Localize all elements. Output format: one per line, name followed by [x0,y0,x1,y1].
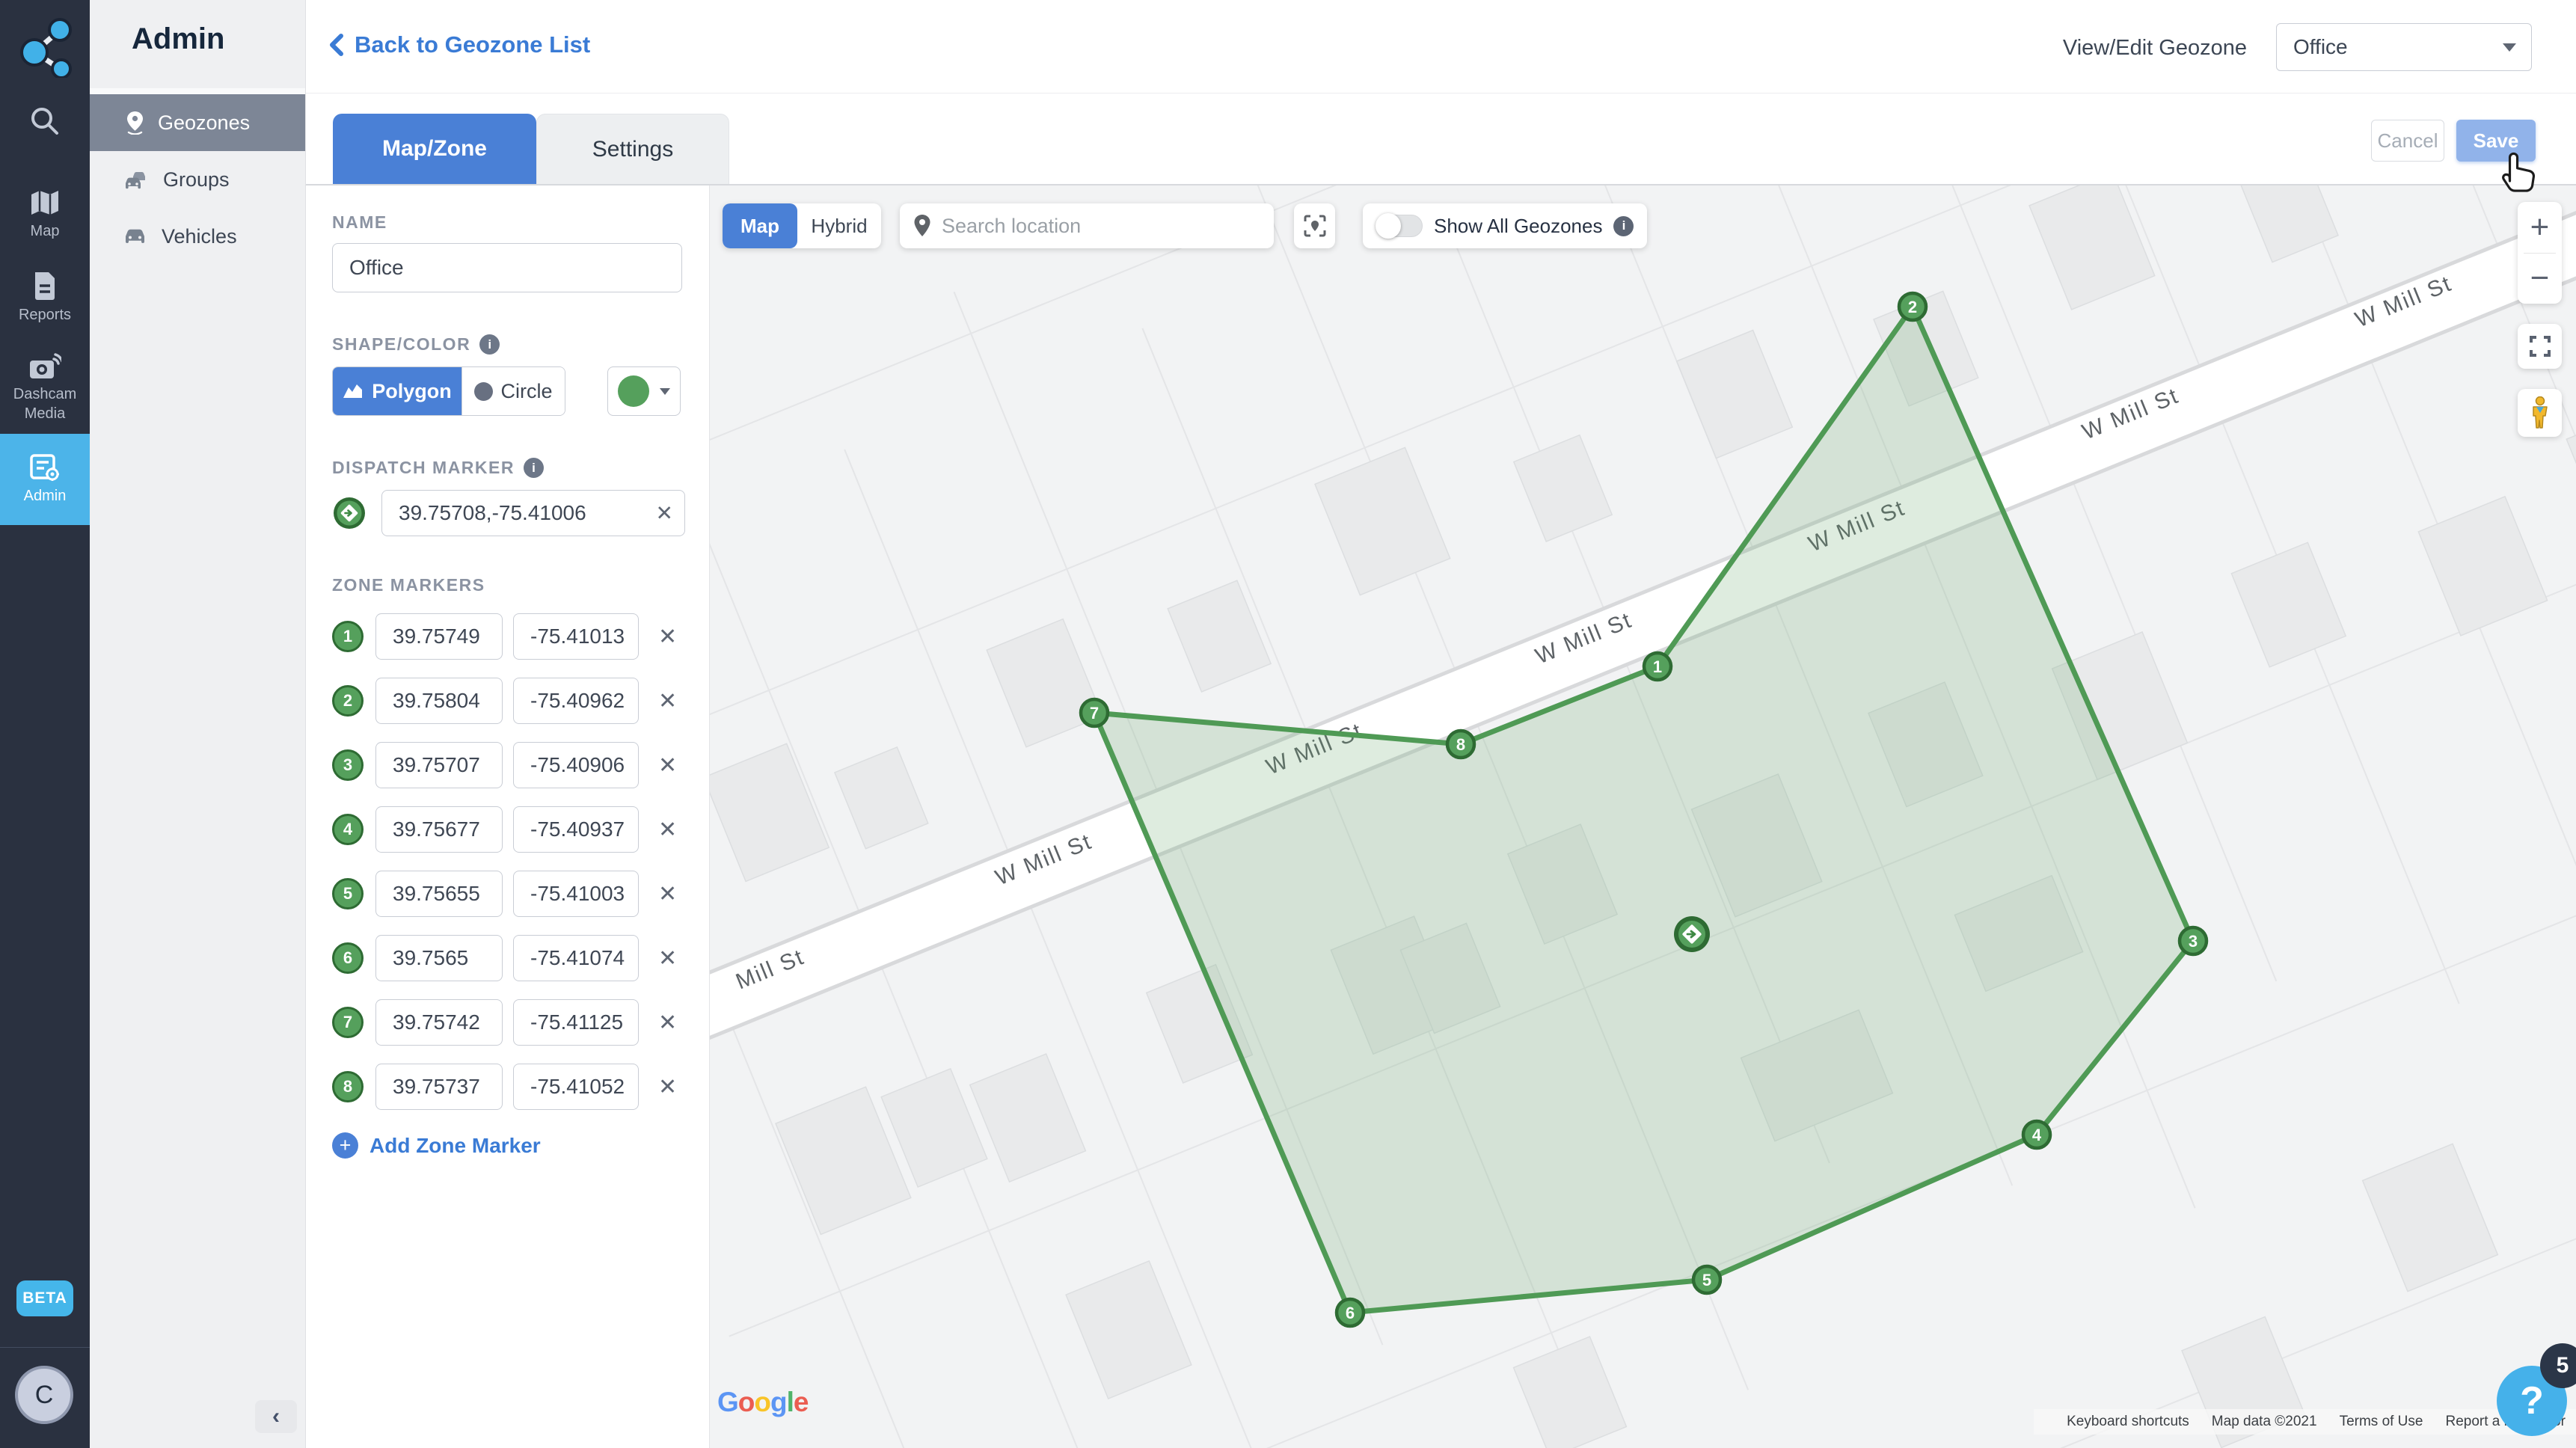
save-button[interactable]: Save [2456,120,2536,162]
dispatch-input-wrap: ✕ [381,490,685,536]
zone-marker-lng-input[interactable] [513,613,639,660]
map-icon [29,188,61,217]
geozone-select-value: Office [2293,35,2348,59]
remove-zone-marker-button[interactable]: ✕ [658,1074,677,1100]
rail-item-label: Reports [0,305,90,325]
reports-icon [32,271,58,301]
zone-marker-row: 4 ✕ [332,806,709,853]
admin-panel-title: Admin [90,0,305,88]
map-zone-marker-number: 5 [1702,1271,1711,1289]
map-base-layer: Mill StW Mill StW Mill StW Mill StW Mill… [710,185,2576,1448]
map-zone-marker[interactable]: 2 [1899,293,1926,320]
center-focus-icon [1304,215,1326,237]
map-zone-marker-number: 8 [1456,735,1465,754]
zone-marker-row: 5 ✕ [332,871,709,917]
zone-marker-lat-input[interactable] [375,999,503,1046]
zone-marker-number-badge: 1 [332,621,364,652]
sidebar-item-label: Vehicles [162,225,237,248]
map-zone-marker[interactable]: 5 [1693,1266,1720,1293]
remove-zone-marker-button[interactable]: ✕ [658,817,677,843]
remove-zone-marker-button[interactable]: ✕ [658,945,677,972]
map-attribution-item[interactable]: Map data ©2021 [2212,1414,2317,1429]
geozone-form-panel: NAME SHAPE/COLOR i Polygon Circle DISPAT… [306,185,710,1448]
clear-dispatch-button[interactable]: ✕ [656,501,673,526]
tab-bar: Map/Zone Settings [333,114,729,184]
zone-marker-list: 1 ✕ 2 ✕ 3 ✕ 4 ✕ 5 ✕ 6 ✕ 7 ✕ [332,613,709,1110]
polygon-icon [343,383,363,399]
plus-icon: + [332,1132,358,1159]
zone-marker-lat-input[interactable] [375,935,503,981]
sidebar-item-vehicles[interactable]: Vehicles [90,208,305,265]
google-logo-letter: o [754,1387,770,1417]
sidebar-item-geozones[interactable]: Geozones [90,94,305,151]
zone-marker-row: 3 ✕ [332,742,709,788]
shape-controls: Polygon Circle [332,366,709,416]
circle-icon [474,382,493,401]
back-link[interactable]: Back to Geozone List [329,31,590,58]
map-dispatch-marker[interactable] [1674,916,1710,952]
zone-marker-lat-input[interactable] [375,678,503,724]
fullscreen-button[interactable] [2518,324,2562,369]
location-pin-icon [913,214,931,238]
info-icon[interactable]: i [1613,216,1634,236]
map-zone-marker-number: 4 [2032,1126,2042,1144]
zone-marker-row: 1 ✕ [332,613,709,660]
tab-map-zone[interactable]: Map/Zone [333,114,536,184]
google-logo-letter: g [770,1387,787,1417]
vehicle-icon [124,226,150,247]
map-zoom-control: + − [2518,202,2562,304]
zone-marker-number-badge: 8 [332,1071,364,1102]
map-zone-marker[interactable]: 3 [2180,927,2207,954]
remove-zone-marker-button[interactable]: ✕ [658,1010,677,1036]
back-link-label: Back to Geozone List [355,31,590,58]
zoom-out-button[interactable]: − [2518,254,2562,304]
sidebar-item-label: Geozones [158,111,250,135]
zone-marker-number-badge: 7 [332,1007,364,1038]
user-avatar[interactable]: C [15,1366,73,1424]
zone-marker-lng-input[interactable] [513,742,639,788]
map-canvas[interactable]: Mill StW Mill StW Mill StW Mill StW Mill… [710,185,2576,1448]
chevron-down-icon [660,388,670,395]
zone-marker-row: 6 ✕ [332,935,709,981]
rail-item-label: Dashcam Media [0,384,90,423]
name-input[interactable] [332,243,682,292]
rail-item-admin[interactable]: Admin [0,434,90,525]
zone-marker-number-badge: 2 [332,685,364,717]
google-logo-letter: o [738,1387,755,1417]
map-attribution: Keyboard shortcutsMap data ©2021Terms of… [2034,1409,2576,1435]
map-zone-marker-number: 3 [2189,932,2198,951]
admin-icon [29,453,61,482]
zone-marker-lng-input[interactable] [513,1064,639,1110]
tab-settings[interactable]: Settings [536,114,729,184]
name-label: NAME [332,212,709,233]
rail-item-reports[interactable]: Reports [0,271,90,343]
google-logo: Google [717,1387,808,1418]
groups-icon [124,169,151,190]
zone-marker-lat-input[interactable] [375,1064,503,1110]
google-logo-letter: l [787,1387,794,1417]
tab-action-row: Map/Zone Settings Cancel Save [306,93,2576,185]
zone-marker-number-badge: 6 [332,942,364,974]
collapse-panel-button[interactable]: ‹ [255,1400,297,1433]
zone-marker-number-badge: 3 [332,749,364,781]
zone-marker-lng-input[interactable] [513,806,639,853]
zone-marker-lat-input[interactable] [375,613,503,660]
rail-item-dashcam[interactable]: Dashcam Media [0,353,90,444]
zone-marker-lng-input[interactable] [513,999,639,1046]
shape-segmented-control: Polygon Circle [332,366,565,416]
rail-item-label: Admin [0,486,90,506]
show-all-geozones-control: Show All Geozones i [1363,203,1647,248]
dispatch-marker-icon [332,496,367,530]
rail-item-label: Map [0,221,90,241]
dashcam-icon [28,353,61,380]
app-logo-icon[interactable] [16,15,73,78]
zone-marker-lng-input[interactable] [513,935,639,981]
rail-item-map[interactable]: Map [0,188,90,260]
map-zone-marker[interactable]: 7 [1081,699,1108,726]
chevron-left-icon [329,34,344,56]
zone-marker-lng-input[interactable] [513,871,639,917]
map-zone-marker[interactable]: 4 [2023,1121,2050,1148]
admin-panel: Admin Geozones Groups Vehicles ‹ [90,0,306,1448]
pegman-button[interactable] [2518,389,2562,437]
remove-zone-marker-button[interactable]: ✕ [658,624,677,650]
zone-marker-number-badge: 5 [332,878,364,909]
fullscreen-icon [2530,336,2551,357]
google-logo-letter: e [794,1387,809,1417]
rail-divider [0,1347,90,1348]
shape-color-label: SHAPE/COLOR i [332,334,709,355]
search-location-input[interactable] [942,215,1226,238]
show-all-geozones-toggle[interactable] [1376,215,1423,237]
circle-shape-button[interactable]: Circle [461,367,565,415]
map-zone-marker[interactable]: 8 [1447,731,1474,758]
icon-rail: Map Reports Dashcam Media [0,0,90,1448]
zone-marker-number-badge: 4 [332,814,364,845]
dispatch-coordinates-input[interactable] [381,490,685,536]
zone-marker-row: 2 ✕ [332,678,709,724]
beta-badge: BETA [16,1280,73,1316]
map-attribution-item[interactable]: Keyboard shortcuts [2067,1414,2189,1429]
map-zone-marker-number: 7 [1090,704,1099,723]
zone-marker-row: 8 ✕ [332,1064,709,1110]
remove-zone-marker-button[interactable]: ✕ [658,752,677,779]
top-bar: Back to Geozone List View/Edit Geozone O… [306,0,2576,93]
map-type-map-button[interactable]: Map [723,203,797,248]
view-edit-label: View/Edit Geozone [2063,36,2247,61]
sidebar-item-label: Groups [163,168,230,191]
pegman-icon [2530,396,2550,429]
google-logo-letter: G [717,1387,738,1417]
zone-markers-label: ZONE MARKERS [332,575,709,595]
info-icon[interactable]: i [479,334,500,355]
remove-zone-marker-button[interactable]: ✕ [658,688,677,714]
search-icon[interactable] [28,105,61,138]
map-zone-marker-number: 2 [1908,298,1917,316]
add-zone-marker-label: Add Zone Marker [369,1134,541,1158]
map-zone-marker-number: 6 [1346,1304,1355,1322]
map-zone-marker[interactable]: 6 [1337,1299,1364,1326]
map-type-toggle: Map Hybrid [723,203,881,248]
zone-marker-lng-input[interactable] [513,678,639,724]
map-attribution-item[interactable]: Terms of Use [2340,1414,2423,1429]
geozone-pin-icon [124,111,146,135]
zone-marker-lat-input[interactable] [375,806,503,853]
sidebar-item-groups[interactable]: Groups [90,151,305,208]
map-type-hybrid-button[interactable]: Hybrid [797,203,881,248]
zone-marker-lat-input[interactable] [375,742,503,788]
cancel-button[interactable]: Cancel [2371,120,2444,162]
zone-marker-lat-input[interactable] [375,871,503,917]
dispatch-marker-label: DISPATCH MARKER i [332,458,709,478]
panel-divider [90,88,305,94]
info-icon[interactable]: i [524,458,544,478]
zone-color-swatch [618,375,649,407]
center-on-zone-button[interactable] [1294,203,1335,248]
show-all-geozones-label: Show All Geozones [1434,215,1602,238]
zone-marker-row: 7 ✕ [332,999,709,1046]
toggle-knob [1376,213,1401,239]
zone-color-select[interactable] [607,366,681,416]
location-search [900,203,1274,248]
remove-zone-marker-button[interactable]: ✕ [658,881,677,907]
polygon-shape-button[interactable]: Polygon [333,367,461,415]
add-zone-marker-button[interactable]: + Add Zone Marker [332,1132,709,1159]
geozone-select[interactable]: Office [2276,23,2532,71]
chevron-down-icon [2503,43,2516,52]
dispatch-marker-row: ✕ [332,490,709,536]
map-zone-marker-number: 1 [1653,657,1662,676]
zoom-in-button[interactable]: + [2518,202,2562,253]
map-zone-marker[interactable]: 1 [1644,653,1671,680]
